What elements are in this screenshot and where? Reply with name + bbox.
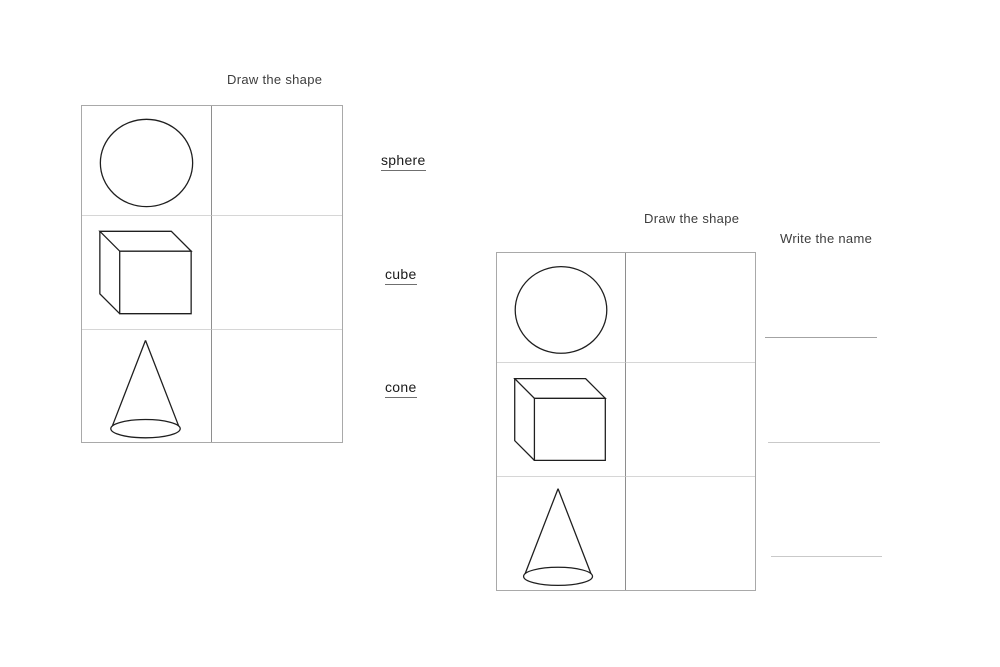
draw-cell-sphere[interactable] (626, 253, 755, 363)
shape-example-cell (82, 216, 212, 330)
write-name-heading: Write the name (780, 231, 872, 246)
draw-cell-sphere[interactable] (212, 106, 342, 216)
shape-example-cell (82, 106, 212, 216)
write-name-line[interactable] (771, 556, 882, 557)
worksheet-title: Draw the shape (227, 72, 322, 87)
cube-shape-icon (82, 216, 211, 329)
worksheet-right: Draw the shape Write the name (470, 0, 1000, 667)
sphere-shape-icon (497, 253, 625, 363)
draw-cell-cone[interactable] (626, 477, 755, 590)
shape-example-cell (82, 330, 212, 442)
shape-label-sphere: sphere (381, 152, 426, 171)
cone-shape-icon (497, 478, 625, 590)
cube-shape-icon (497, 363, 625, 476)
cone-shape-icon (82, 330, 211, 442)
shape-table (496, 252, 756, 591)
draw-cell-cube[interactable] (212, 216, 342, 330)
worksheet-left: Draw the shape sphere cube (0, 0, 470, 667)
draw-cell-cube[interactable] (626, 363, 755, 477)
shape-label-cone: cone (385, 379, 417, 398)
shape-example-cell (497, 253, 626, 363)
sphere-shape-icon (82, 106, 211, 216)
shape-label-cube: cube (385, 266, 417, 285)
shape-table (81, 105, 343, 443)
shape-example-cell (497, 477, 626, 590)
shape-example-cell (497, 363, 626, 477)
write-name-line[interactable] (765, 337, 877, 338)
worksheet-title: Draw the shape (644, 211, 739, 226)
draw-cell-cone[interactable] (212, 330, 342, 442)
write-name-line[interactable] (768, 442, 880, 443)
